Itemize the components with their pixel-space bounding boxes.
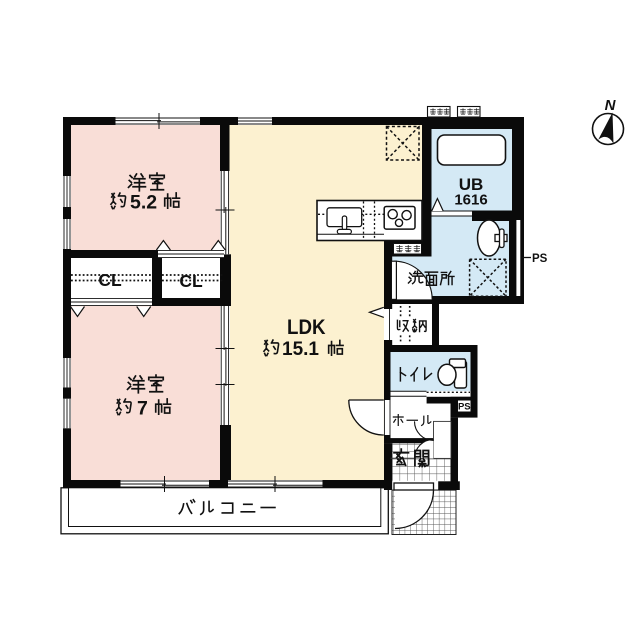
svg-text:7: 7 (137, 398, 148, 420)
svg-text:5.2: 5.2 (130, 192, 157, 214)
svg-text:1616: 1616 (454, 192, 487, 209)
svg-text:PS: PS (458, 402, 471, 413)
svg-text:15.1: 15.1 (282, 339, 319, 360)
svg-text:N: N (605, 97, 617, 114)
svg-text:CL: CL (179, 271, 203, 291)
svg-text:LDK: LDK (287, 315, 326, 339)
svg-text:PS: PS (532, 253, 548, 265)
svg-text:CL: CL (98, 270, 122, 290)
